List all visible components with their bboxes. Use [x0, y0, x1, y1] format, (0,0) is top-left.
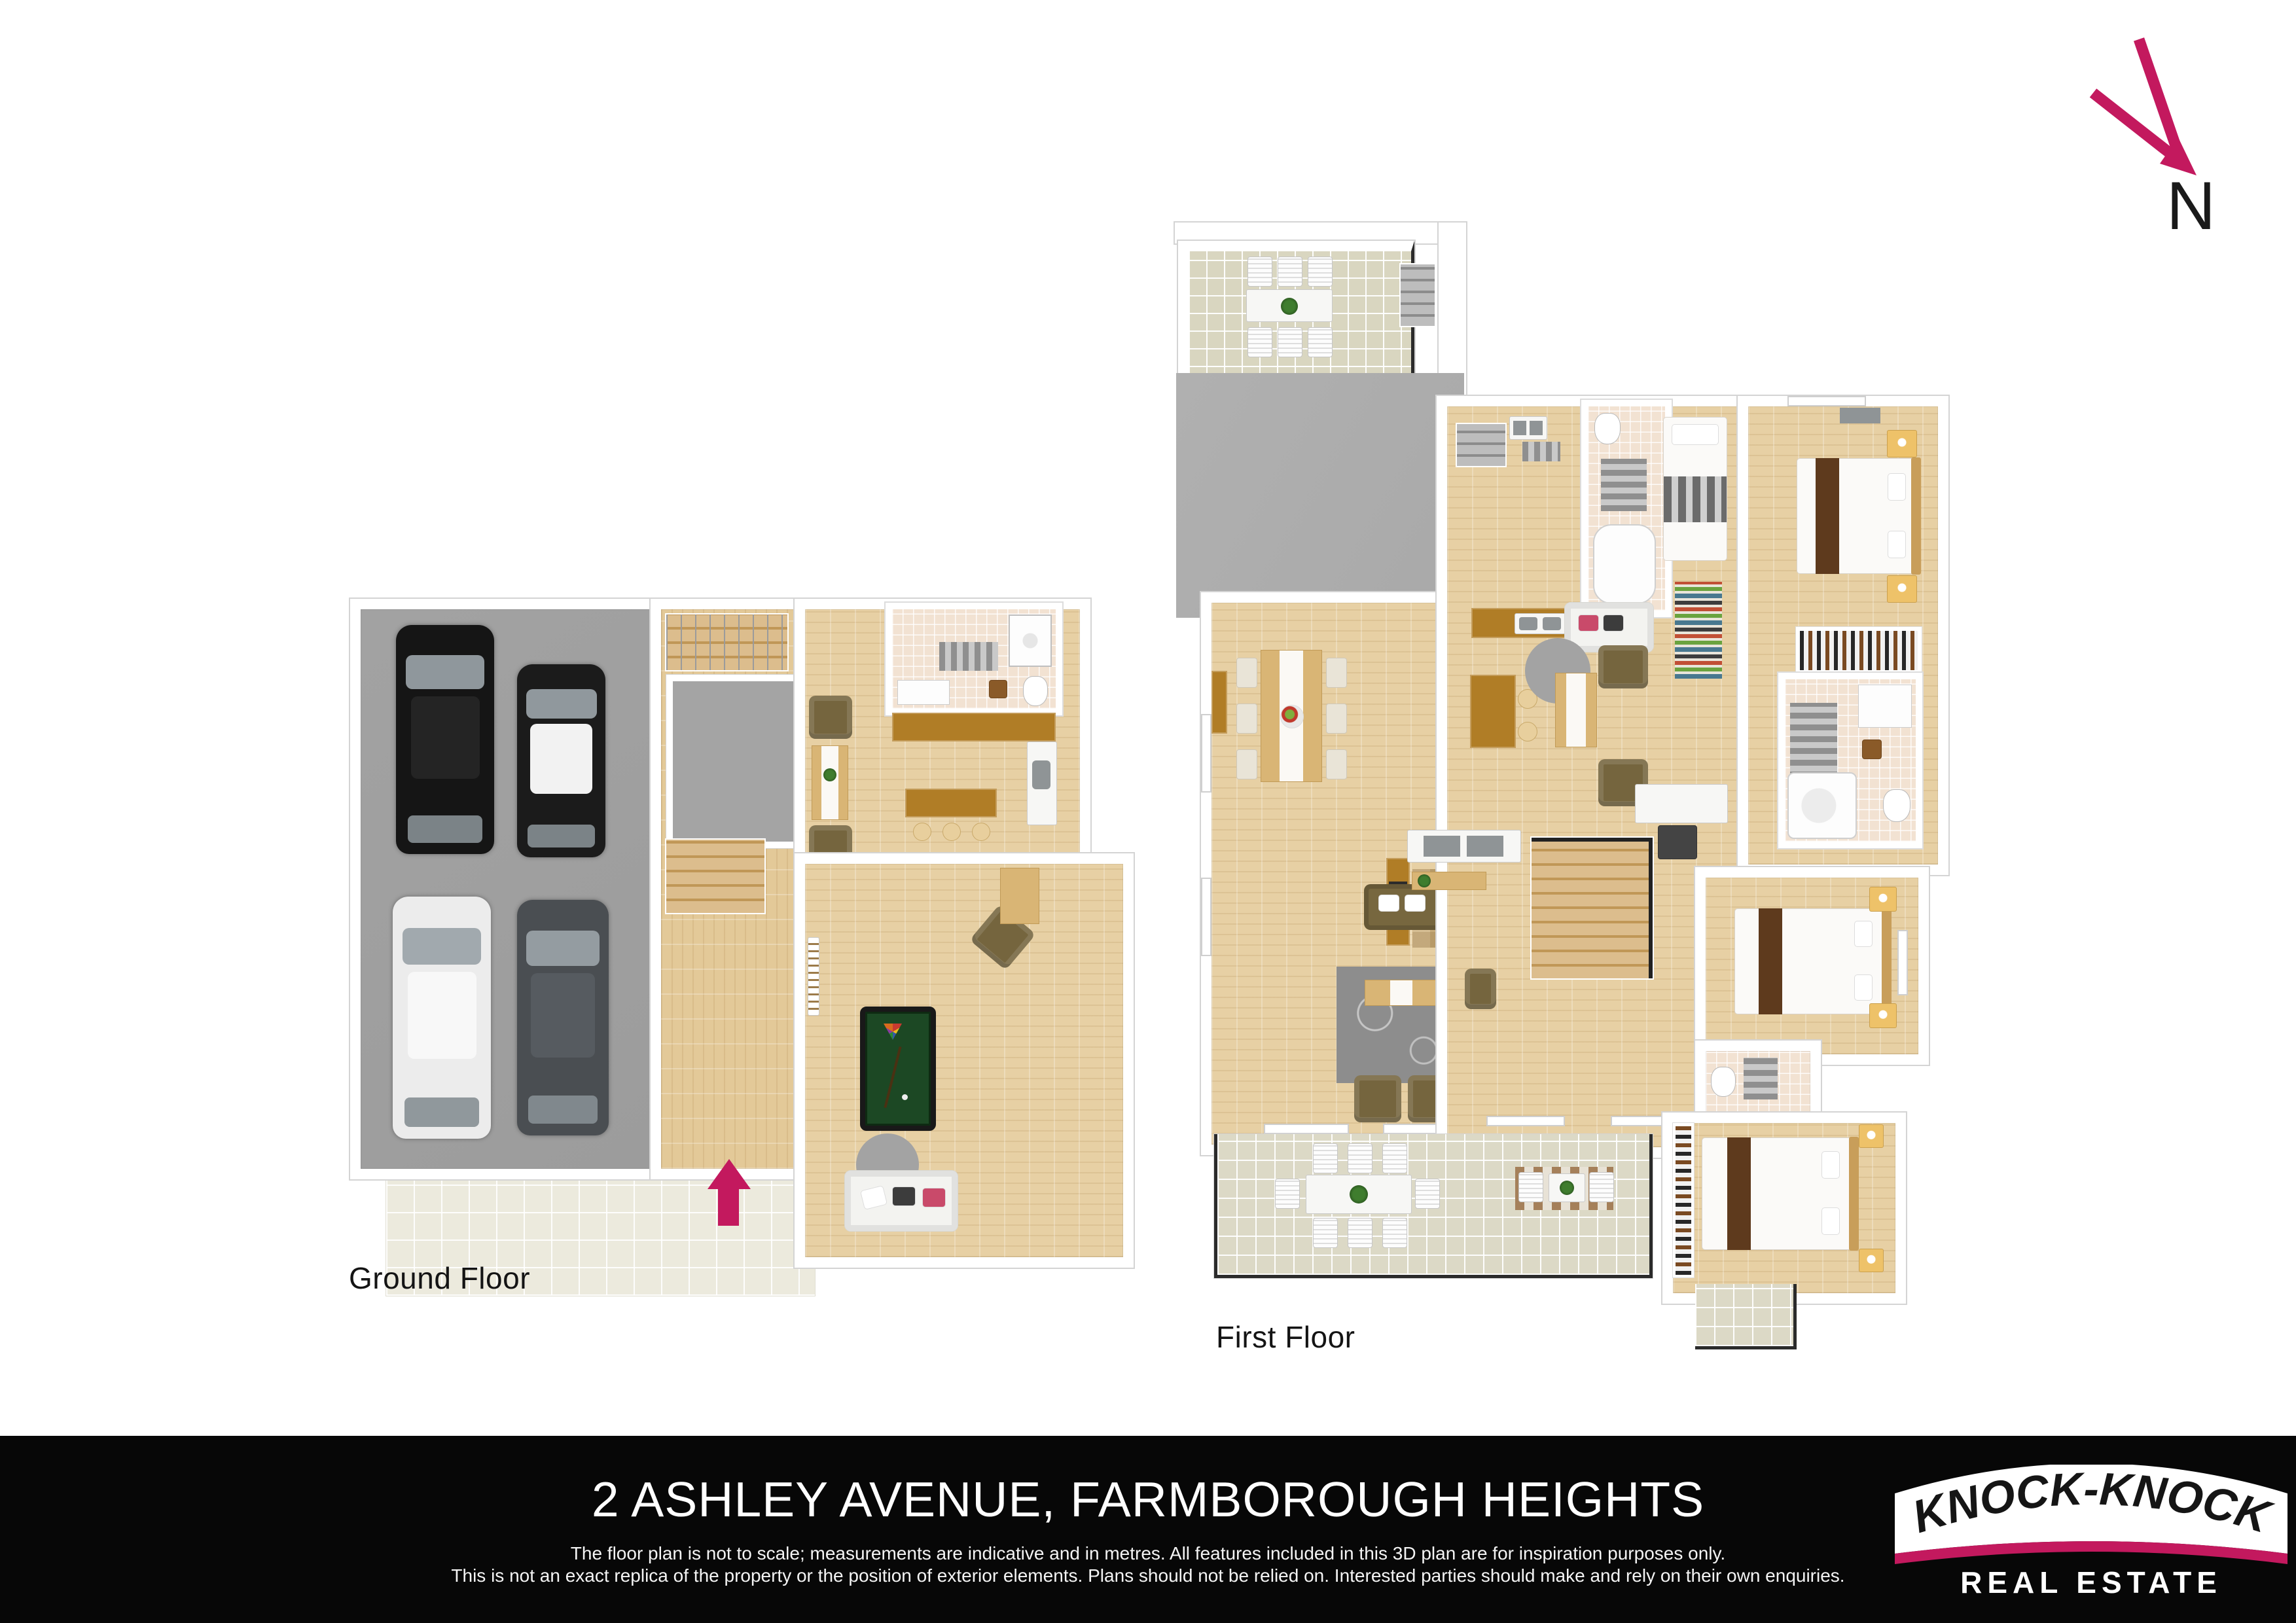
toilet [1883, 789, 1910, 822]
console-table [1412, 872, 1486, 890]
outdoor-chair [1382, 1218, 1407, 1248]
car-rear-window [528, 1096, 598, 1124]
first-floor-label: First Floor [1216, 1319, 1355, 1355]
bar-stool [972, 823, 990, 841]
master-suite [1738, 396, 1948, 875]
pillow [1821, 1207, 1840, 1235]
ground-floor-plan [350, 599, 1116, 1296]
bed-headboard [1911, 457, 1921, 575]
rear-porch [1695, 1284, 1797, 1349]
outdoor-chair [1278, 327, 1302, 357]
pool-table [860, 1007, 936, 1131]
outdoor-chair [1308, 257, 1333, 287]
bar-counter-top [892, 713, 1056, 741]
outdoor-dining-table [1306, 1175, 1412, 1214]
upper-terrace [1178, 241, 1414, 388]
bedroom-three [1695, 867, 1929, 1065]
outdoor-dining-table [1246, 289, 1333, 322]
window [1201, 714, 1211, 793]
pillow [1854, 921, 1873, 947]
balcony [1214, 1134, 1653, 1278]
armchair [1354, 1075, 1401, 1122]
corner-spa-bath [1787, 772, 1857, 839]
roof-edge [1439, 223, 1466, 398]
ensuite [1785, 679, 1916, 842]
pillow [1821, 1151, 1840, 1179]
table-decor [823, 768, 836, 781]
nightstand [1859, 1124, 1884, 1148]
toilet [1594, 413, 1621, 444]
cushion [1405, 895, 1426, 912]
family-coffee-table [1365, 980, 1438, 1006]
dining-chair [1236, 704, 1257, 734]
car-roof [408, 972, 476, 1059]
logo-subtitle: REAL ESTATE [1960, 1565, 2222, 1599]
outdoor-chair [1275, 1179, 1300, 1209]
striped-rug [1675, 582, 1722, 679]
bath-mat [1790, 703, 1837, 777]
bed-headboard [1849, 1137, 1859, 1251]
bistro-chair [1589, 1172, 1614, 1202]
master-bed [1797, 458, 1919, 574]
table-runner [1566, 673, 1586, 747]
dining-chair [1326, 749, 1347, 779]
pillow [1888, 473, 1906, 501]
cushion [1603, 615, 1624, 632]
stair-handrail [1532, 838, 1653, 842]
dresser [1840, 408, 1880, 423]
stair-balustrade [666, 615, 787, 670]
outdoor-chair [1348, 1218, 1372, 1248]
sink-bowl [1543, 617, 1561, 630]
bistro-chair [1518, 1172, 1543, 1202]
fruit-bowl [1280, 705, 1304, 728]
pool-cue [884, 1046, 901, 1108]
bath-mat [939, 642, 998, 671]
car-rear-window [408, 815, 482, 843]
window [1787, 396, 1866, 406]
bed-runner [1759, 908, 1782, 1014]
car-roof [531, 973, 595, 1058]
stair-handrail [1649, 838, 1653, 978]
cushion [922, 1188, 946, 1207]
sitting-coffee-table [1555, 673, 1597, 747]
roof-area [1176, 373, 1464, 618]
agency-logo: “KNOCK-KNOCK” REAL ESTATE [1895, 1465, 2287, 1618]
pool-ball-rack [884, 1024, 902, 1040]
window [1383, 1124, 1442, 1134]
nightstand [1887, 430, 1917, 457]
armchair [809, 696, 852, 739]
bath-stool [989, 680, 1007, 698]
car-windshield [406, 655, 484, 690]
dining-chair [1236, 658, 1257, 688]
bath-stool [1862, 740, 1882, 759]
laundry-sink [1530, 421, 1543, 435]
laundry-tubs [1509, 416, 1547, 440]
pillow [1672, 424, 1719, 445]
bath-mat [1744, 1058, 1778, 1099]
outdoor-chair [1278, 257, 1302, 287]
bed-runner [1816, 458, 1839, 574]
armchair [1598, 645, 1648, 688]
window [1897, 930, 1908, 995]
toilet [1711, 1067, 1736, 1097]
north-arrow-icon [2093, 39, 2197, 175]
bed-throw [1664, 476, 1727, 522]
main-staircase [1532, 838, 1653, 978]
outdoor-chair [1415, 1179, 1440, 1209]
first-floor-plan [1175, 223, 1993, 1374]
sideboard [1211, 671, 1227, 734]
study-desk [1635, 784, 1728, 823]
nightstand [1887, 575, 1917, 603]
queen-bed [1702, 1137, 1857, 1250]
footer-bar: 2 ASHLEY AVENUE, FARMBOROUGH HEIGHTS The… [0, 1436, 2296, 1623]
nightstand [1859, 1249, 1884, 1272]
sofa-white [844, 1170, 958, 1232]
north-compass: N [2062, 13, 2258, 236]
toilet [1023, 676, 1048, 706]
outdoor-chair [1313, 1143, 1338, 1173]
outdoor-chair [1348, 1143, 1372, 1173]
table-runner [1390, 980, 1412, 1005]
car-rear-window [528, 825, 595, 847]
window [1486, 1116, 1565, 1126]
window [1264, 1124, 1349, 1134]
car-gray [517, 900, 609, 1135]
cushion [892, 1186, 916, 1206]
double-sink [1515, 613, 1566, 634]
tv-wall-unit [1407, 830, 1521, 863]
entrance-arrow-icon [708, 1159, 751, 1189]
outdoor-chair [1247, 327, 1272, 357]
bathtub [1593, 524, 1656, 604]
cue-rack [808, 937, 819, 1016]
bistro-table [1549, 1173, 1585, 1202]
bed-runner [1727, 1137, 1751, 1250]
nightstand [1869, 887, 1897, 912]
dining-chair [1236, 749, 1257, 779]
stairs-upper-flight [666, 615, 787, 670]
table-centrepiece [1281, 298, 1298, 315]
nightstand [1869, 1003, 1897, 1028]
cushion [860, 1185, 888, 1210]
bedroom-four [1662, 1113, 1906, 1304]
walk-in-robe-shoe-rack [1796, 627, 1922, 674]
outdoor-chair [1308, 327, 1333, 357]
outdoor-chair [1247, 257, 1272, 287]
cue-ball [902, 1094, 908, 1100]
sink-bowl [1519, 617, 1537, 630]
ensuite-vanity [1858, 685, 1912, 728]
kitchen-island [1470, 675, 1516, 748]
desk-chair [1658, 825, 1697, 859]
bath-mat [1601, 459, 1647, 511]
hall-and-bar-wing [795, 599, 1090, 885]
store-room [666, 675, 802, 848]
island-stool [1518, 722, 1537, 741]
car-roof [530, 724, 592, 793]
table-centrepiece [1560, 1181, 1574, 1195]
table-runner [821, 746, 838, 819]
garage [350, 599, 682, 1179]
pillow [1854, 974, 1873, 1001]
laundry-sink [1513, 421, 1526, 435]
car-windshield [526, 689, 597, 718]
outdoor-chair [1382, 1143, 1407, 1173]
tv-panel [1467, 836, 1503, 857]
single-bed [1663, 417, 1727, 561]
reading-chair [1465, 969, 1496, 1009]
cushion [1578, 615, 1599, 632]
car-black-white-roof [517, 664, 605, 857]
ground-floor-label: Ground Floor [349, 1260, 530, 1296]
bathroom-ground [892, 609, 1056, 709]
car-black-sedan [396, 625, 494, 854]
plant [1418, 874, 1431, 887]
terrace-stairs [1401, 264, 1435, 326]
shower [1009, 615, 1052, 667]
rumpus-room [795, 853, 1134, 1268]
stairs-lower-flight [666, 840, 764, 913]
bed-headboard [1882, 908, 1892, 1015]
dining-table [1261, 650, 1322, 782]
tv-panel [1424, 836, 1460, 857]
table-centrepiece [1350, 1185, 1368, 1204]
main-bathroom [1588, 406, 1665, 611]
car-rear-window [404, 1097, 479, 1126]
wardrobe-shoe-rack [1673, 1123, 1694, 1277]
queen-bed [1734, 908, 1890, 1014]
coffee-table [812, 745, 848, 820]
bar-sink [1032, 760, 1050, 789]
car-roof [411, 696, 480, 779]
pillow [1888, 531, 1906, 558]
corner-desk [1000, 868, 1039, 924]
window [1201, 878, 1211, 956]
car-white [393, 897, 491, 1139]
bar-stool [913, 823, 931, 841]
outdoor-chair [1313, 1218, 1338, 1248]
bathroom-vanity [897, 680, 950, 705]
stairs-to-ground [1457, 424, 1505, 466]
north-label: N [2166, 168, 2215, 236]
floorplan-sheet: N [0, 0, 2296, 1623]
bar-island [905, 789, 997, 817]
entrance-arrow-stem [718, 1188, 739, 1226]
cushion [1378, 895, 1399, 912]
car-windshield [403, 928, 481, 965]
bar-sink-counter [1027, 741, 1057, 825]
bar-stool [942, 823, 961, 841]
dining-chair [1326, 704, 1347, 734]
laundry-mat [1522, 442, 1560, 461]
car-windshield [526, 931, 600, 966]
dining-chair [1326, 658, 1347, 688]
